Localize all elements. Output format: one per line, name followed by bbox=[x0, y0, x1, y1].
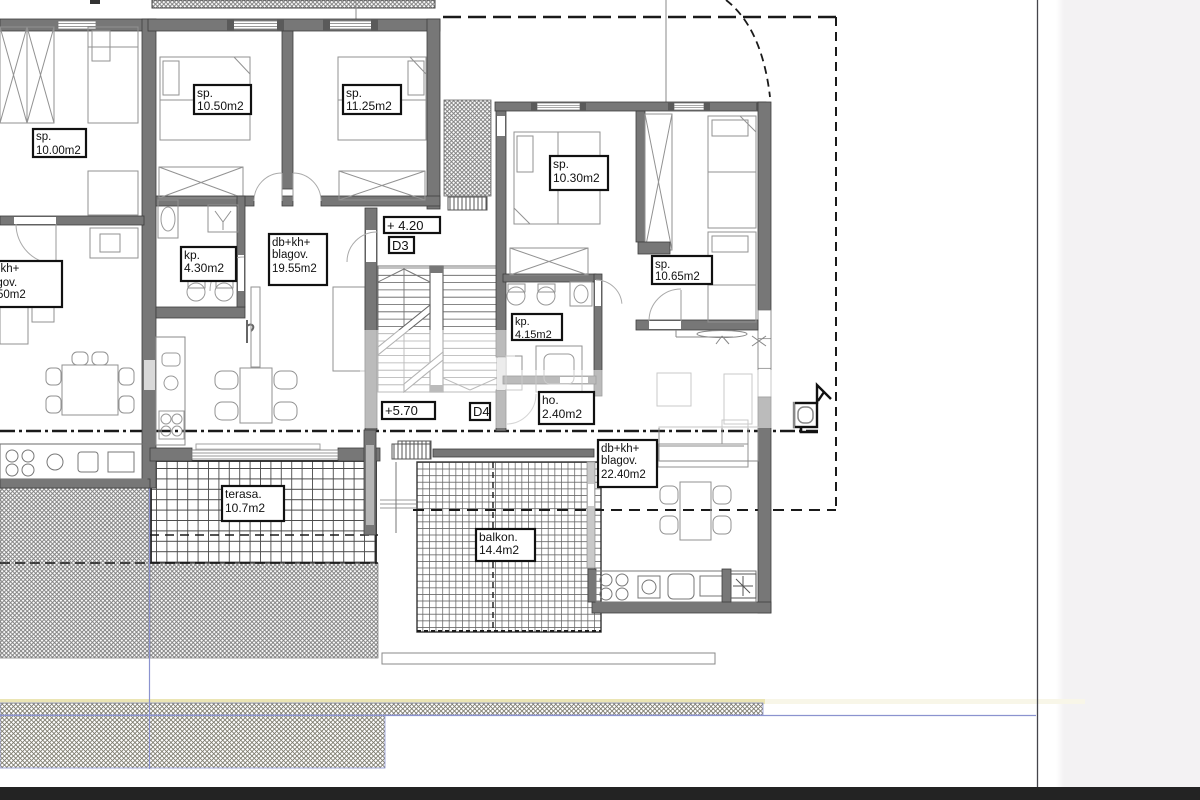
svg-text:sp.: sp. bbox=[346, 86, 362, 100]
svg-text:14.4m2: 14.4m2 bbox=[479, 543, 519, 557]
svg-text:blagov.: blagov. bbox=[272, 249, 308, 261]
svg-text:blagov.: blagov. bbox=[0, 277, 17, 289]
svg-text:4.15m2: 4.15m2 bbox=[515, 329, 552, 341]
svg-text:4.30m2: 4.30m2 bbox=[184, 261, 224, 275]
svg-text:db+kh+: db+kh+ bbox=[601, 443, 640, 455]
svg-text:+5.70: +5.70 bbox=[385, 403, 418, 418]
svg-text:10.7m2: 10.7m2 bbox=[225, 501, 265, 515]
svg-text:balkon.: balkon. bbox=[479, 530, 518, 544]
svg-text:db+kh+: db+kh+ bbox=[272, 237, 311, 249]
svg-text:17.50m2: 17.50m2 bbox=[0, 289, 26, 301]
svg-text:terasa.: terasa. bbox=[225, 487, 262, 501]
svg-text:sp.: sp. bbox=[553, 157, 569, 171]
svg-text:sp.: sp. bbox=[655, 259, 670, 271]
svg-text:D4: D4 bbox=[473, 404, 490, 419]
svg-text:db+kh+: db+kh+ bbox=[0, 263, 20, 275]
svg-text:10.00m2: 10.00m2 bbox=[36, 145, 81, 157]
svg-text:ho.: ho. bbox=[542, 393, 559, 407]
svg-text:blagov.: blagov. bbox=[601, 455, 637, 467]
svg-text:sp.: sp. bbox=[36, 131, 51, 143]
svg-text:22.40m2: 22.40m2 bbox=[601, 469, 646, 481]
svg-text:11.25m2: 11.25m2 bbox=[346, 99, 392, 113]
svg-text:kp.: kp. bbox=[184, 248, 200, 262]
svg-text:kp.: kp. bbox=[515, 316, 530, 328]
svg-text:10.50m2: 10.50m2 bbox=[197, 99, 244, 113]
svg-text:D3: D3 bbox=[392, 238, 409, 253]
svg-text:19.55m2: 19.55m2 bbox=[272, 263, 317, 275]
svg-text:2.40m2: 2.40m2 bbox=[542, 407, 582, 421]
svg-text:10.65m2: 10.65m2 bbox=[655, 271, 700, 283]
svg-text:+ 4.20: + 4.20 bbox=[387, 218, 424, 233]
svg-text:sp.: sp. bbox=[197, 86, 213, 100]
svg-text:10.30m2: 10.30m2 bbox=[553, 171, 600, 185]
